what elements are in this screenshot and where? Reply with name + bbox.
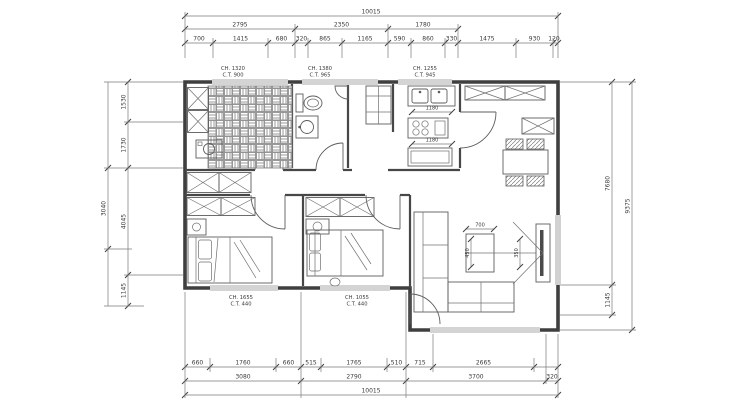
window-top-3: [398, 79, 452, 85]
window-living-bottom: [430, 327, 540, 333]
dim-top-overall: 10015: [361, 9, 380, 16]
dim-top-r3-6: 590: [394, 36, 406, 43]
window-bedroom-second: [320, 285, 390, 291]
dim-bot-overall: 10015: [361, 388, 380, 395]
win-label-top2-ct: C.T. 965: [309, 73, 330, 79]
window-top-2: [302, 79, 378, 85]
dim-top-r2-2: 1780: [415, 22, 430, 29]
win-label-bot2-ct: C.T. 440: [346, 302, 367, 308]
dim-bot-r2-0: 3080: [235, 374, 250, 381]
dim-bot-r1-1: 1760: [235, 360, 250, 367]
dim-bot-r2-2: 3700: [468, 374, 483, 381]
dim-left-in-2: 4045: [121, 214, 128, 229]
window-bedroom-master: [210, 285, 278, 291]
dim-top-r2-0: 2795: [232, 22, 247, 29]
dim-right-in-0: 7680: [605, 176, 612, 191]
dimension-chain-top: 10015 2795 2350 1780 700 1415 680 320 86…: [182, 9, 561, 59]
kitchen-counter-dim-top: 1180: [426, 106, 439, 112]
floor-plan-svg: 10015 2795 2350 1780 700 1415 680 320 86…: [0, 0, 740, 411]
building-plan: CH. 1320 C.T. 900 CH. 1380 C.T. 965 CH. …: [185, 66, 561, 333]
dim-top-r3-5: 1165: [357, 36, 372, 43]
win-label-top1-ct: C.T. 900: [222, 73, 243, 79]
dim-bot-r2-1: 2790: [346, 374, 361, 381]
dim-bot-r1-0: 660: [192, 360, 204, 367]
dim-left-in-1: 1730: [121, 137, 128, 152]
dim-left-in-0: 1530: [121, 94, 128, 109]
win-label-top3-ct: C.T. 945: [414, 73, 435, 79]
dim-top-r3-1: 1415: [233, 36, 248, 43]
dim-top-r3-0: 700: [193, 36, 205, 43]
win-label-top3-ch: CH. 1255: [413, 66, 437, 72]
dim-left-outer: 3040: [101, 201, 108, 216]
win-label-top2-ch: CH. 1380: [308, 66, 332, 72]
dim-bot-r1-3: 515: [305, 360, 317, 367]
dim-right-in-1: 1145: [605, 292, 612, 307]
extension-lines-left: [104, 82, 183, 306]
dimension-chain-left: 1530 1730 4045 1145 3040: [101, 79, 184, 309]
dim-bot-r2-3: 320: [546, 374, 558, 381]
dim-bot-r1-5: 510: [391, 360, 403, 367]
dim-bot-r1-4: 1765: [346, 360, 361, 367]
window-top-1: [212, 79, 288, 85]
dim-top-r3-3: 320: [296, 36, 308, 43]
floor-plan-page: 10015 2795 2350 1780 700 1415 680 320 86…: [0, 0, 740, 411]
win-label-bot1-ct: C.T. 440: [230, 302, 251, 308]
tv-clearance-label: 350: [514, 248, 520, 258]
dimension-chain-right: 7680 1145 9375: [560, 79, 636, 333]
dim-top-r3-7: 860: [422, 36, 434, 43]
dim-right-outer: 9375: [625, 198, 632, 213]
win-label-bot1-ch: CH. 1655: [229, 295, 253, 301]
dim-bot-r1-2: 660: [283, 360, 295, 367]
coffee-table-width-dim: 700: [475, 223, 485, 229]
dim-bot-r1-7: 2665: [476, 360, 491, 367]
tiled-floor: [208, 86, 292, 168]
window-living-right: [555, 215, 561, 285]
dim-top-r2-1: 2350: [334, 22, 349, 29]
dim-top-r3-2: 680: [276, 36, 288, 43]
kitchen-counter-dim-bottom: 1180: [426, 138, 439, 144]
win-label-bot2-ch: CH. 1055: [345, 295, 369, 301]
dim-bot-r1-6: 715: [414, 360, 426, 367]
dim-top-r3-4: 865: [319, 36, 331, 43]
dim-left-in-3: 1145: [121, 283, 128, 298]
coffee-table-depth-dim: 450: [465, 248, 471, 258]
dim-top-r3-9: 1475: [479, 36, 494, 43]
dim-top-r3-8: 330: [446, 36, 458, 43]
win-label-top1-ch: CH. 1320: [221, 66, 245, 72]
dim-top-r3-10: 930: [529, 36, 541, 43]
